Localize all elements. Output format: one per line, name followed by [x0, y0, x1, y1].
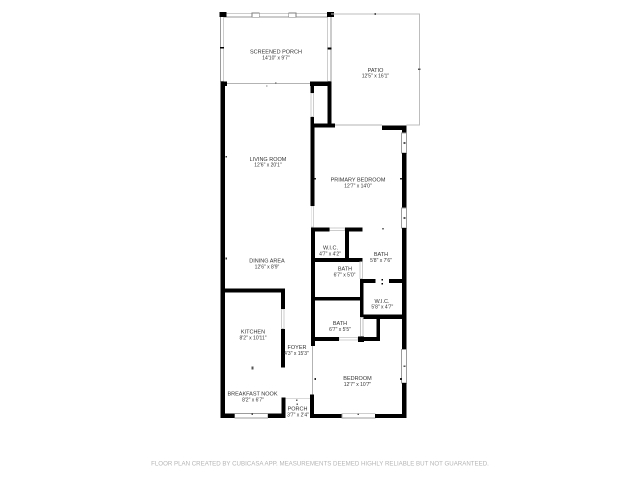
svg-text:6'7" x 5'0": 6'7" x 5'0": [334, 273, 356, 279]
svg-text:8'2" x 6'7": 8'2" x 6'7": [242, 397, 264, 403]
svg-text:DINING AREA: DINING AREA: [249, 259, 285, 265]
svg-text:5'8" x 4'7": 5'8" x 4'7": [371, 305, 393, 311]
svg-text:3'7" x 2'4": 3'7" x 2'4": [287, 412, 309, 418]
svg-text:12'6" x 8'9": 12'6" x 8'9": [255, 265, 280, 271]
svg-text:6'7" x 5'5": 6'7" x 5'5": [329, 327, 351, 333]
svg-text:SCREENED PORCH: SCREENED PORCH: [250, 49, 302, 55]
svg-text:12'7" x 14'0": 12'7" x 14'0": [344, 183, 372, 189]
svg-text:12'7" x 10'7": 12'7" x 10'7": [344, 382, 372, 388]
svg-text:4'7" x 4'2": 4'7" x 4'2": [319, 251, 341, 257]
svg-text:12'6" x 20'1": 12'6" x 20'1": [254, 163, 282, 169]
svg-text:12'5" x 16'1": 12'5" x 16'1": [362, 74, 390, 80]
svg-text:FLOOR PLAN CREATED BY CUBICASA: FLOOR PLAN CREATED BY CUBICASA APP. MEAS…: [151, 460, 489, 467]
svg-text:4'3" x 15'3": 4'3" x 15'3": [284, 351, 309, 357]
svg-text:8'2" x 10'11": 8'2" x 10'11": [239, 335, 266, 341]
svg-text:14'10" x 9'7": 14'10" x 9'7": [262, 55, 290, 61]
svg-text:5'8" x 7'6": 5'8" x 7'6": [370, 258, 392, 264]
